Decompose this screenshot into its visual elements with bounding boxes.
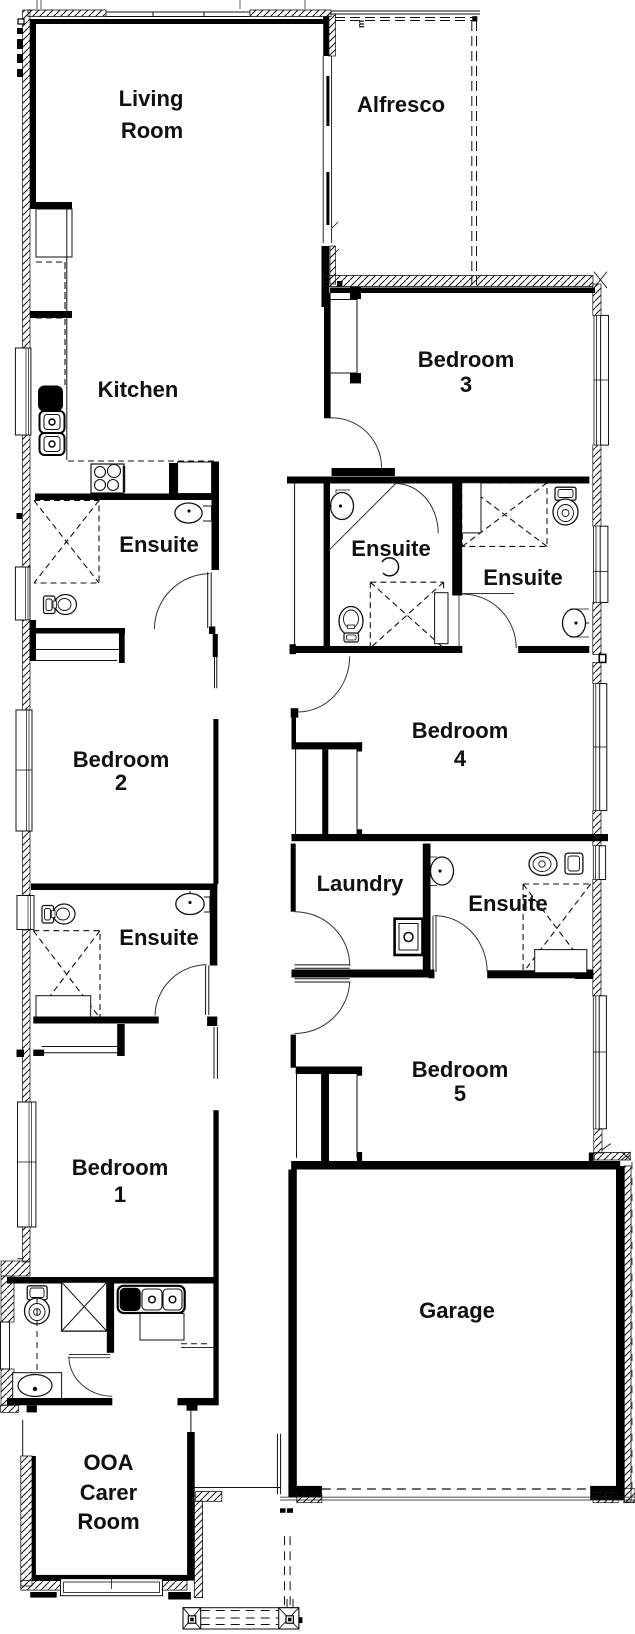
svg-text:m: m xyxy=(356,20,366,28)
svg-text:Living: Living xyxy=(119,86,184,111)
svg-text:Room: Room xyxy=(121,118,183,143)
svg-text:5: 5 xyxy=(454,1081,466,1106)
svg-text:Bedroom: Bedroom xyxy=(412,718,509,743)
svg-text:1: 1 xyxy=(114,1182,126,1207)
svg-text:Bedroom: Bedroom xyxy=(73,747,170,772)
svg-text:Alfresco: Alfresco xyxy=(357,92,445,117)
svg-text:2: 2 xyxy=(115,770,127,795)
svg-text:Laundry: Laundry xyxy=(317,871,405,896)
svg-text:Carer: Carer xyxy=(80,1480,138,1505)
svg-text:Ensuite: Ensuite xyxy=(119,532,198,557)
svg-text:OOA: OOA xyxy=(83,1450,133,1475)
svg-text:4: 4 xyxy=(454,746,467,771)
svg-text:Garage: Garage xyxy=(419,1298,495,1323)
svg-text:Bedroom: Bedroom xyxy=(72,1155,169,1180)
svg-text:Ensuite: Ensuite xyxy=(119,925,198,950)
svg-text:Bedroom: Bedroom xyxy=(418,347,515,372)
svg-text:Ensuite: Ensuite xyxy=(468,891,547,916)
svg-text:Ensuite: Ensuite xyxy=(483,565,562,590)
svg-text:Room: Room xyxy=(77,1509,139,1534)
svg-text:3: 3 xyxy=(460,372,472,397)
svg-text:Kitchen: Kitchen xyxy=(98,377,179,402)
svg-text:Bedroom: Bedroom xyxy=(412,1057,509,1082)
